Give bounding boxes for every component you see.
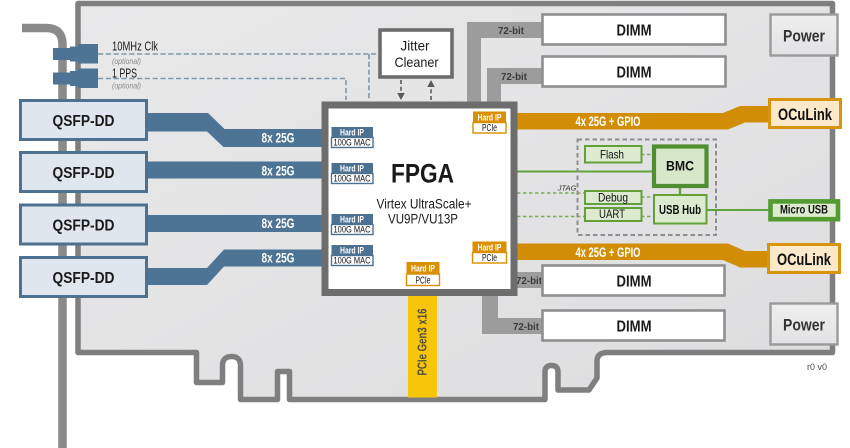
svg-text:72-bit: 72-bit xyxy=(513,321,539,333)
svg-text:OCuLink: OCuLink xyxy=(778,105,832,124)
svg-text:QSFP-DD: QSFP-DD xyxy=(53,113,115,130)
svg-text:8x 25G: 8x 25G xyxy=(262,164,295,179)
svg-text:Hard IP: Hard IP xyxy=(478,243,502,253)
svg-text:VU9P/VU13P: VU9P/VU13P xyxy=(388,212,458,227)
svg-text:DIMM: DIMM xyxy=(617,23,652,40)
svg-text:(optional): (optional) xyxy=(112,56,141,66)
svg-text:r0 v0: r0 v0 xyxy=(807,362,827,373)
svg-text:PCIe: PCIe xyxy=(416,276,431,287)
svg-text:72-bit: 72-bit xyxy=(516,275,542,287)
svg-text:JTAG: JTAG xyxy=(557,184,577,193)
svg-text:Flash: Flash xyxy=(600,148,624,162)
svg-text:100G MAC: 100G MAC xyxy=(334,174,371,185)
svg-text:100G MAC: 100G MAC xyxy=(334,256,371,267)
svg-text:8x 25G: 8x 25G xyxy=(262,216,295,231)
svg-text:QSFP-DD: QSFP-DD xyxy=(53,165,115,182)
svg-text:PCIe Gen3 x16: PCIe Gen3 x16 xyxy=(415,309,430,376)
svg-text:PCIe: PCIe xyxy=(482,253,497,264)
svg-text:Debug: Debug xyxy=(598,191,628,205)
svg-text:72-bit: 72-bit xyxy=(498,25,524,37)
svg-text:OCuLink: OCuLink xyxy=(777,250,831,269)
svg-text:4x 25G + GPIO: 4x 25G + GPIO xyxy=(576,245,641,260)
svg-text:Power: Power xyxy=(783,317,825,335)
svg-text:10MHz Clk: 10MHz Clk xyxy=(112,39,158,54)
svg-text:100G MAC: 100G MAC xyxy=(334,138,371,149)
svg-text:Virtex UltraScale+: Virtex UltraScale+ xyxy=(377,197,472,212)
svg-text:Hard IP: Hard IP xyxy=(478,113,502,123)
svg-text:Cleaner: Cleaner xyxy=(395,54,439,70)
svg-text:Hard IP: Hard IP xyxy=(411,264,435,274)
svg-text:72-bit: 72-bit xyxy=(501,71,527,83)
svg-text:PCIe: PCIe xyxy=(482,123,497,134)
svg-text:Power: Power xyxy=(783,28,825,46)
svg-text:DIMM: DIMM xyxy=(617,274,652,291)
svg-text:1 PPS: 1 PPS xyxy=(112,66,137,81)
svg-text:QSFP-DD: QSFP-DD xyxy=(53,270,115,287)
svg-text:Micro USB: Micro USB xyxy=(780,203,828,217)
svg-text:4x 25G + GPIO: 4x 25G + GPIO xyxy=(576,114,641,129)
svg-text:QSFP-DD: QSFP-DD xyxy=(53,218,115,235)
svg-text:DIMM: DIMM xyxy=(617,319,652,336)
svg-text:100G MAC: 100G MAC xyxy=(334,225,371,236)
svg-text:(optional): (optional) xyxy=(112,81,141,91)
svg-text:Jitter: Jitter xyxy=(401,38,430,54)
svg-text:Hard IP: Hard IP xyxy=(340,164,364,174)
svg-text:BMC: BMC xyxy=(666,159,694,174)
svg-text:UART: UART xyxy=(599,207,626,221)
svg-text:Hard IP: Hard IP xyxy=(340,128,364,138)
svg-text:USB Hub: USB Hub xyxy=(659,203,701,217)
svg-text:Hard IP: Hard IP xyxy=(340,215,364,225)
svg-text:FPGA: FPGA xyxy=(391,159,454,189)
svg-text:8x 25G: 8x 25G xyxy=(262,131,295,146)
svg-text:Hard IP: Hard IP xyxy=(340,246,364,256)
svg-text:8x 25G: 8x 25G xyxy=(262,251,295,266)
svg-text:DIMM: DIMM xyxy=(617,65,652,82)
